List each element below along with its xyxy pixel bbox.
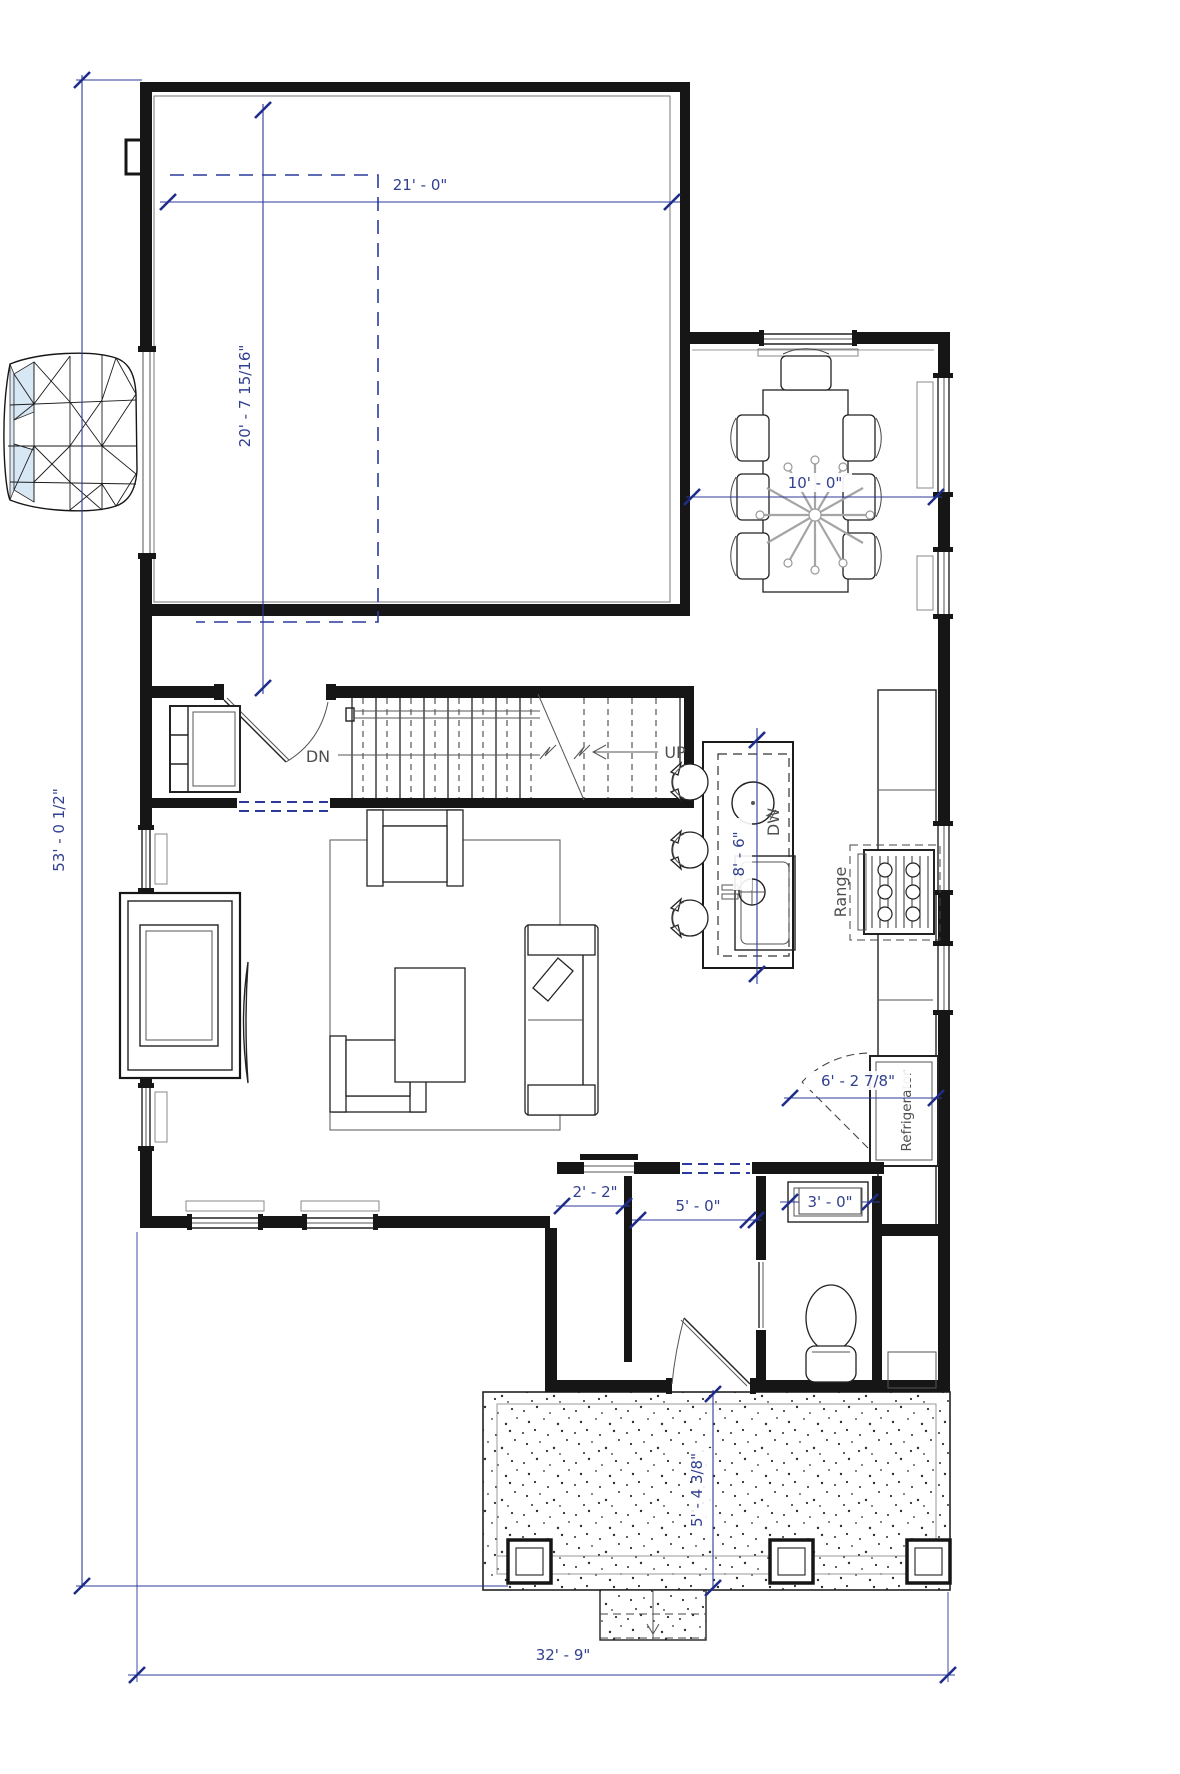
garage-door	[138, 346, 156, 559]
porch-column	[770, 1540, 813, 1583]
east-window	[917, 373, 953, 497]
range-label: Range	[831, 867, 850, 918]
dim-garage-depth: 20' - 7 15/16"	[236, 345, 254, 448]
porch-column	[508, 1540, 551, 1583]
dim-garage-width: 21' - 0"	[393, 176, 448, 194]
dim-overall-height: 53' - 0 1/2"	[50, 788, 68, 872]
stairs-up-label: UP	[664, 743, 686, 762]
porch-column	[907, 1540, 950, 1583]
east-window	[933, 821, 953, 895]
dim-dining-width: 10' - 0"	[788, 474, 843, 492]
sofa	[525, 925, 598, 1115]
bar-stool	[671, 899, 708, 937]
dim-porch-depth: 5' - 4 3/8"	[688, 1453, 706, 1527]
dim-hall-width: 5' - 0"	[675, 1197, 720, 1215]
kitchen: DW	[671, 690, 953, 1226]
tv	[244, 962, 249, 1083]
bar-stool	[671, 831, 708, 869]
fireplace	[120, 893, 240, 1078]
bar-stool	[671, 763, 708, 801]
dining-north-window	[758, 330, 858, 356]
front-door	[666, 1318, 756, 1394]
west-window	[138, 825, 167, 893]
floor-plan: DN UP	[0, 0, 1180, 1774]
car	[4, 353, 137, 511]
dining-chair	[781, 349, 831, 390]
south-window	[301, 1201, 379, 1230]
dim-island-length: 8' - 6"	[730, 831, 748, 876]
upper-floor-dashed-outline	[170, 175, 378, 622]
toilet	[806, 1285, 856, 1382]
east-window	[917, 547, 953, 619]
dim-bath-window: 3' - 0"	[807, 1193, 852, 1211]
dim-overall-width: 32' - 9"	[536, 1646, 591, 1664]
dim-closet-width: 2' - 2"	[572, 1183, 617, 1201]
entry-cabinet	[170, 706, 240, 792]
stairs-dn-label: DN	[306, 747, 330, 766]
garage	[126, 82, 690, 622]
dishwasher-label: DW	[764, 808, 783, 836]
west-window	[138, 1083, 167, 1151]
east-window	[933, 941, 953, 1015]
pantry-door-dashed	[802, 1053, 870, 1148]
stair-break-line	[538, 694, 584, 800]
stairs: DN UP	[152, 684, 694, 811]
dim-fridge-run: 6' - 2 7/8"	[821, 1072, 895, 1090]
range	[850, 845, 940, 940]
coffee-table	[395, 968, 465, 1082]
porch-steps	[600, 1590, 706, 1640]
armchair	[367, 810, 463, 886]
handrail	[346, 708, 540, 721]
porch	[483, 1392, 950, 1640]
south-window	[186, 1201, 264, 1230]
